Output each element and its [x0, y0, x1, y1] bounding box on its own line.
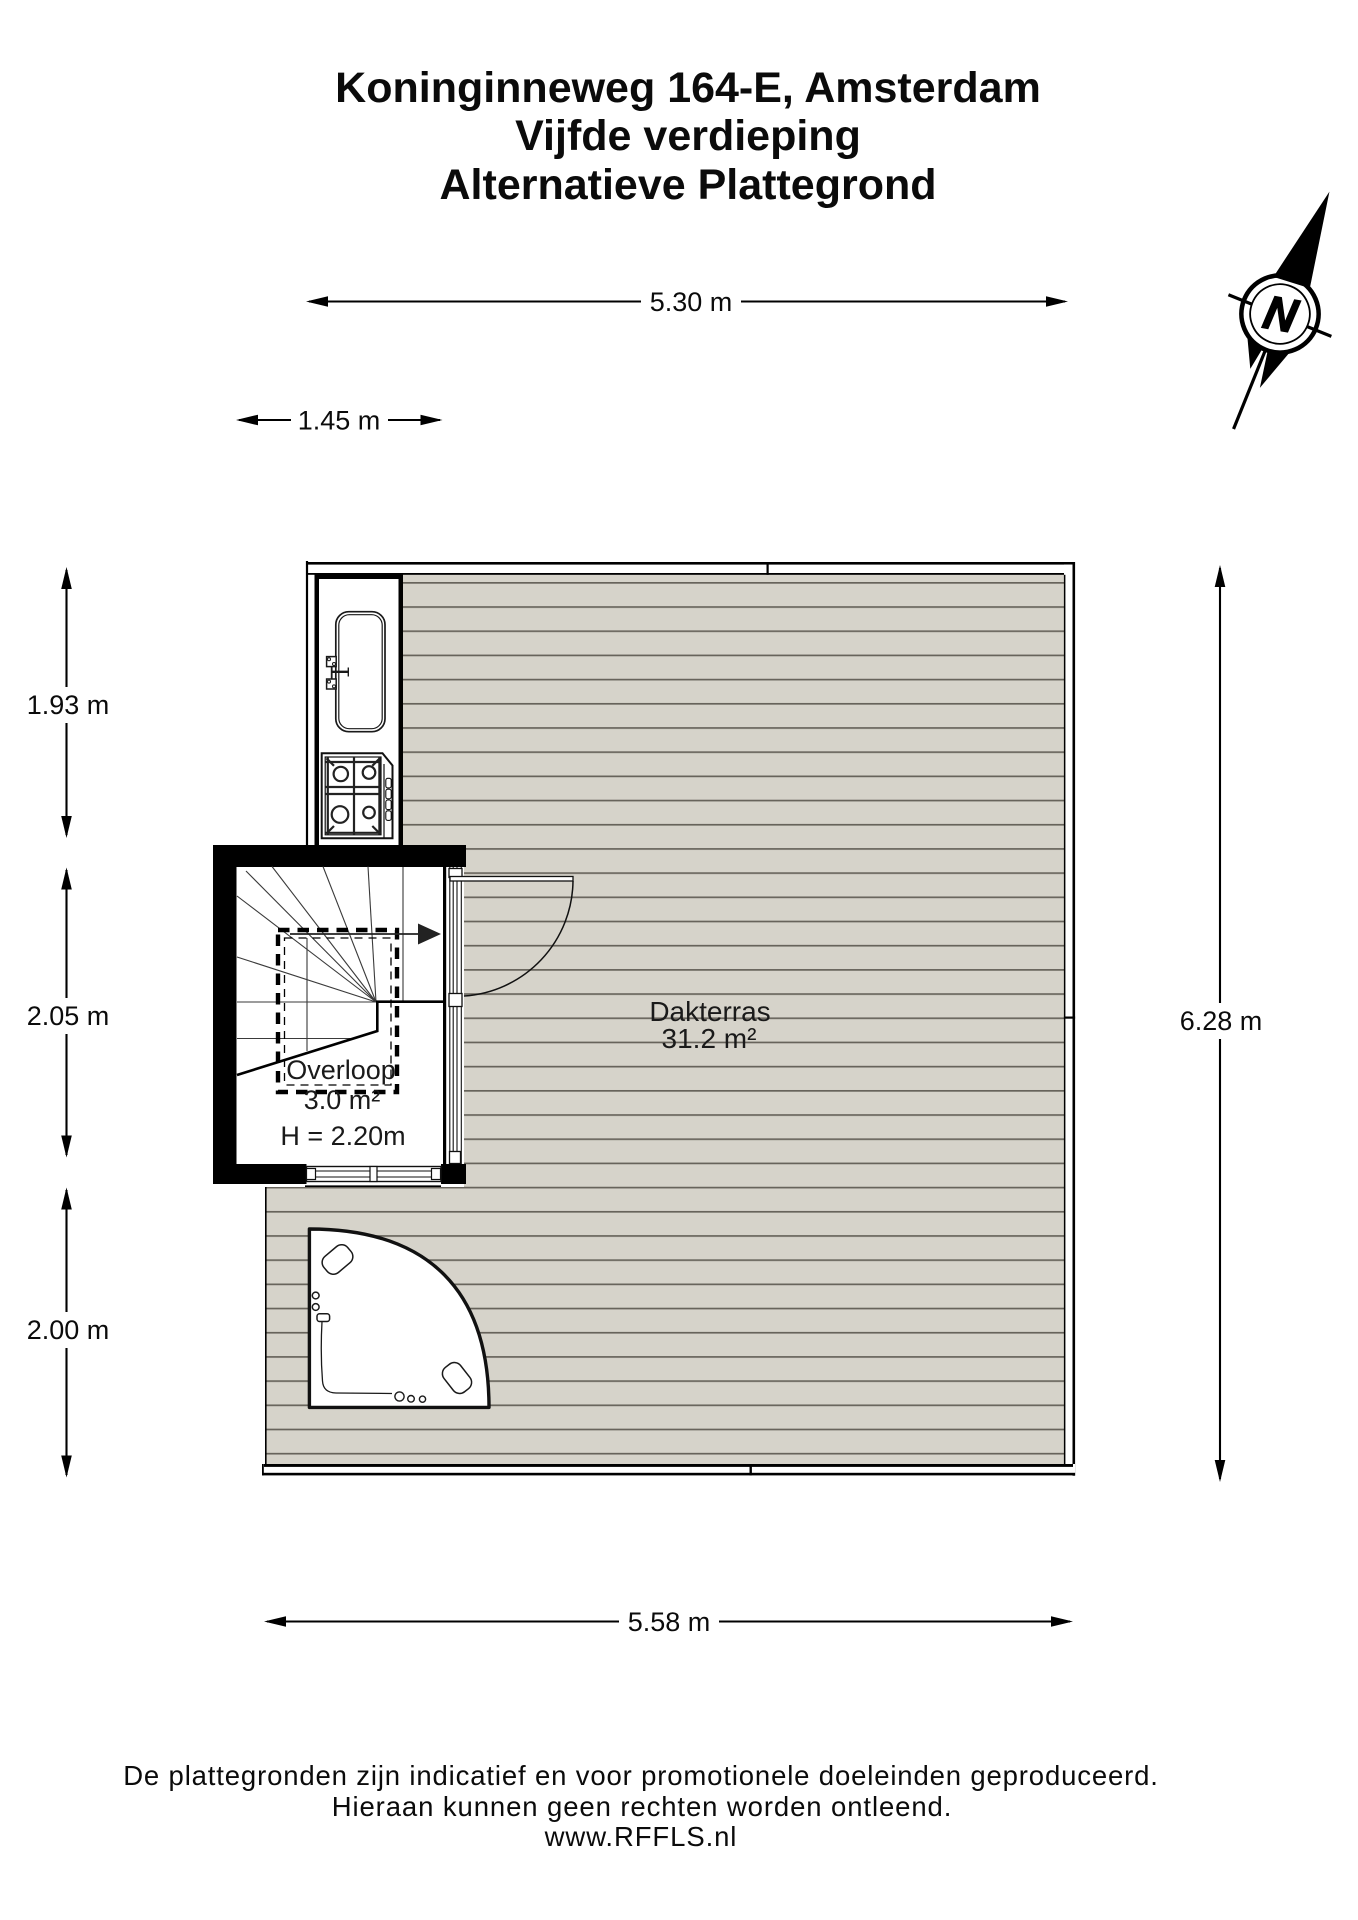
- svg-text:Vijfde verdieping: Vijfde verdieping: [515, 112, 861, 160]
- svg-text:Overloop: Overloop: [286, 1055, 396, 1085]
- svg-text:Alternatieve Plattegrond: Alternatieve Plattegrond: [440, 161, 937, 209]
- svg-text:2.00 m: 2.00 m: [27, 1315, 110, 1345]
- svg-text:Koninginneweg 164-E, Amsterdam: Koninginneweg 164-E, Amsterdam: [335, 64, 1041, 112]
- svg-text:1.45 m: 1.45 m: [298, 406, 381, 436]
- svg-text:6.28 m: 6.28 m: [1180, 1006, 1263, 1036]
- svg-text:H = 2.20m: H = 2.20m: [280, 1121, 405, 1151]
- svg-text:1.93 m: 1.93 m: [27, 690, 110, 720]
- svg-text:2.05 m: 2.05 m: [27, 1001, 110, 1031]
- svg-text:5.58 m: 5.58 m: [628, 1607, 711, 1637]
- svg-text:3.0 m²: 3.0 m²: [304, 1085, 381, 1115]
- svg-text:De plattegronden zijn indicati: De plattegronden zijn indicatief en voor…: [123, 1760, 1159, 1791]
- svg-text:Hieraan kunnen geen rechten wo: Hieraan kunnen geen rechten worden ontle…: [332, 1791, 953, 1822]
- svg-text:www.RFFLS.nl: www.RFFLS.nl: [544, 1821, 738, 1852]
- svg-text:5.30 m: 5.30 m: [650, 287, 733, 317]
- svg-text:31.2 m²: 31.2 m²: [662, 1023, 757, 1054]
